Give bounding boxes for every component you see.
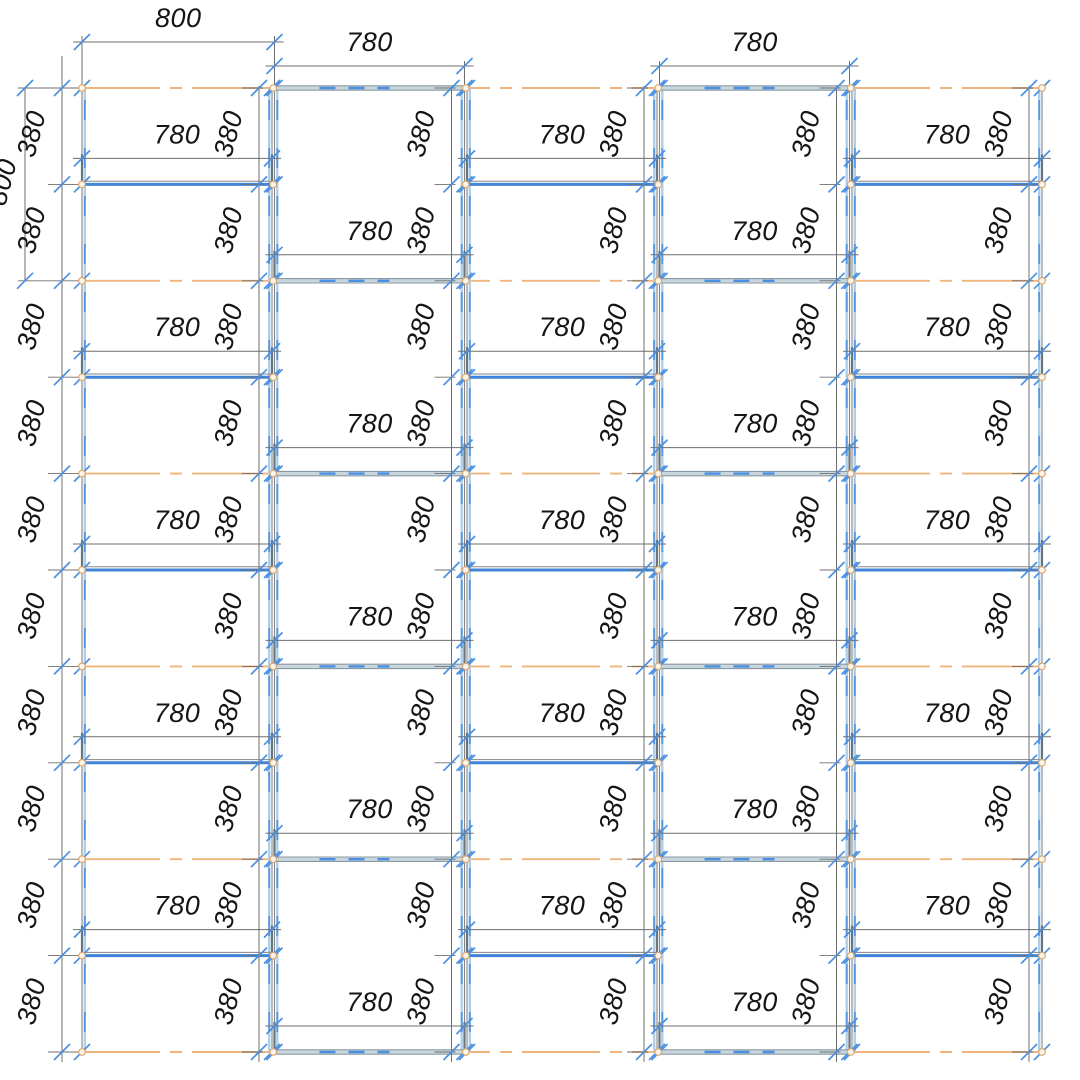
- joint-node-circle: [655, 760, 662, 767]
- dim-label-380: 380: [11, 397, 52, 450]
- joint-node-circle: [79, 85, 86, 92]
- joint-node-circle: [1039, 567, 1046, 574]
- joint-node-circle: [847, 760, 854, 767]
- dim-label-380: 380: [400, 108, 441, 161]
- joint-node-circle: [270, 470, 277, 477]
- dim-label-380: 380: [208, 204, 249, 257]
- joint-node-circle: [1039, 952, 1046, 959]
- dim-label-780: 780: [731, 987, 778, 1017]
- dim-label-380: 380: [593, 975, 634, 1028]
- joint-node-circle: [462, 470, 469, 477]
- joint-node-circle: [270, 663, 277, 670]
- dim-label-380: 380: [593, 300, 634, 353]
- dim-label-380: 380: [593, 204, 634, 257]
- dim-label-380: 380: [208, 493, 249, 546]
- joint-node-circle: [462, 856, 469, 863]
- joint-node-circle: [655, 952, 662, 959]
- joint-node-circle: [655, 663, 662, 670]
- joint-node-circle: [655, 85, 662, 92]
- dim-label-380: 380: [978, 300, 1019, 353]
- joint-node-circle: [655, 856, 662, 863]
- dim-label-380: 380: [593, 879, 634, 932]
- dim-label-380: 380: [11, 975, 52, 1028]
- joint-node-circle: [462, 1049, 469, 1056]
- joint-node-circle: [462, 85, 469, 92]
- dim-label-380: 380: [978, 590, 1019, 643]
- dim-label-380: 380: [978, 108, 1019, 161]
- panel-layout-drawing: 7807807807807808007807807807807807807807…: [0, 0, 1080, 1080]
- joint-node-circle: [462, 663, 469, 670]
- dim-label-380: 380: [400, 975, 441, 1028]
- joint-node-circle: [847, 278, 854, 285]
- joint-node-circle: [79, 663, 86, 670]
- joint-node-circle: [79, 278, 86, 285]
- dim-label-380: 380: [593, 590, 634, 643]
- dim-label-380: 380: [978, 686, 1019, 739]
- dim-label-380: 380: [593, 397, 634, 450]
- dim-label-780: 780: [539, 119, 586, 149]
- dim-label-380: 380: [400, 686, 441, 739]
- joint-node-circle: [847, 567, 854, 574]
- joint-node-circle: [270, 856, 277, 863]
- joint-node-circle: [1039, 374, 1046, 381]
- dim-label-380: 380: [785, 879, 826, 932]
- dim-label-380: 380: [11, 108, 52, 161]
- dim-label-780: 780: [346, 794, 393, 824]
- joint-node-circle: [847, 856, 854, 863]
- dim-label-top-780: 780: [731, 27, 778, 57]
- dim-label-780: 780: [924, 891, 971, 921]
- joint-node-circle: [270, 952, 277, 959]
- joint-node-circle: [462, 952, 469, 959]
- joint-node-circle: [1039, 760, 1046, 767]
- dim-label-780: 780: [154, 119, 201, 149]
- dim-label-780: 780: [539, 891, 586, 921]
- dim-label-780: 780: [539, 505, 586, 535]
- joint-node-circle: [462, 181, 469, 188]
- joint-node-circle: [847, 470, 854, 477]
- dim-label-top-780: 780: [346, 27, 393, 57]
- dim-label-380: 380: [978, 975, 1019, 1028]
- dim-label-380: 380: [593, 686, 634, 739]
- dim-label-380: 380: [11, 590, 52, 643]
- dim-label-780: 780: [731, 794, 778, 824]
- dim-label-380: 380: [400, 590, 441, 643]
- dim-label-780: 780: [154, 505, 201, 535]
- joint-node-circle: [79, 1049, 86, 1056]
- joint-node-circle: [847, 952, 854, 959]
- dim-label-780: 780: [924, 698, 971, 728]
- dim-label-380: 380: [11, 782, 52, 835]
- joint-node-circle: [655, 278, 662, 285]
- dim-label-380: 380: [11, 493, 52, 546]
- joint-node-circle: [462, 374, 469, 381]
- joint-node-circle: [79, 374, 86, 381]
- dim-label-380: 380: [400, 782, 441, 835]
- joint-node-circle: [1039, 470, 1046, 477]
- dim-label-780: 780: [346, 601, 393, 631]
- joint-node-circle: [655, 1049, 662, 1056]
- joint-node-circle: [847, 374, 854, 381]
- dim-label-380: 380: [208, 397, 249, 450]
- dim-label-780: 780: [731, 216, 778, 246]
- joint-node-circle: [270, 85, 277, 92]
- dim-label-380: 380: [11, 300, 52, 353]
- dim-label-380: 380: [400, 493, 441, 546]
- joint-node-circle: [270, 374, 277, 381]
- dim-label-380: 380: [593, 782, 634, 835]
- dim-label-780: 780: [154, 891, 201, 921]
- joint-node-circle: [847, 663, 854, 670]
- joint-node-circle: [1039, 1049, 1046, 1056]
- dim-label-780: 780: [154, 312, 201, 342]
- dim-label-780: 780: [346, 987, 393, 1017]
- joint-node-circle: [655, 374, 662, 381]
- dim-label-380: 380: [785, 204, 826, 257]
- dim-label-780: 780: [539, 698, 586, 728]
- dim-label-380: 380: [11, 879, 52, 932]
- dim-label-380: 380: [785, 397, 826, 450]
- dim-label-780: 780: [924, 312, 971, 342]
- joint-node-circle: [847, 1049, 854, 1056]
- dim-label-380: 380: [208, 590, 249, 643]
- dim-label-380: 380: [785, 975, 826, 1028]
- joint-node-circle: [462, 567, 469, 574]
- joint-node-circle: [79, 181, 86, 188]
- joint-node-circle: [462, 278, 469, 285]
- dim-label-380: 380: [208, 686, 249, 739]
- dim-label-380: 380: [785, 686, 826, 739]
- joint-node-circle: [270, 1049, 277, 1056]
- joint-node-circle: [270, 278, 277, 285]
- dim-label-380: 380: [208, 975, 249, 1028]
- joint-node-circle: [79, 567, 86, 574]
- joint-node-circle: [655, 470, 662, 477]
- joint-node-circle: [270, 760, 277, 767]
- joint-node-circle: [655, 567, 662, 574]
- joint-node-circle: [1039, 663, 1046, 670]
- joint-node-circle: [1039, 85, 1046, 92]
- dim-label-380: 380: [400, 397, 441, 450]
- joint-node-circle: [79, 952, 86, 959]
- dim-label-380: 380: [978, 397, 1019, 450]
- dim-label-380: 380: [208, 108, 249, 161]
- dim-label-780: 780: [924, 119, 971, 149]
- dim-label-780: 780: [924, 505, 971, 535]
- labels-group: 7807807807807808007807807807807807807807…: [0, 3, 1019, 1028]
- joint-node-circle: [270, 181, 277, 188]
- dim-label-380: 380: [593, 493, 634, 546]
- dim-label-380: 380: [400, 300, 441, 353]
- joint-node-circle: [847, 85, 854, 92]
- dim-label-380: 380: [208, 300, 249, 353]
- dim-label-380: 380: [978, 204, 1019, 257]
- joint-node-circle: [1039, 278, 1046, 285]
- joint-node-circle: [79, 856, 86, 863]
- dim-label-380: 380: [593, 108, 634, 161]
- dim-label-380: 380: [785, 108, 826, 161]
- dim-label-380: 380: [785, 300, 826, 353]
- cad-drawing-stage: 7807807807807808007807807807807807807807…: [0, 0, 1080, 1080]
- dim-label-780: 780: [731, 409, 778, 439]
- joint-node-circle: [1039, 181, 1046, 188]
- dim-label-380: 380: [785, 590, 826, 643]
- dim-label-780: 780: [154, 698, 201, 728]
- joint-node-circle: [462, 760, 469, 767]
- joint-node-circle: [79, 760, 86, 767]
- dim-label-380: 380: [208, 879, 249, 932]
- dim-label-top-800: 800: [155, 3, 202, 33]
- dim-label-780: 780: [731, 601, 778, 631]
- dim-label-380: 380: [978, 493, 1019, 546]
- joint-node-circle: [847, 181, 854, 188]
- dim-label-780: 780: [539, 312, 586, 342]
- dim-label-800: 800: [0, 156, 23, 209]
- dim-label-380: 380: [978, 782, 1019, 835]
- joint-node-circle: [270, 567, 277, 574]
- dim-label-380: 380: [400, 879, 441, 932]
- dim-label-380: 380: [978, 879, 1019, 932]
- dim-label-380: 380: [400, 204, 441, 257]
- dim-label-380: 380: [11, 204, 52, 257]
- dim-label-380: 380: [208, 782, 249, 835]
- dim-label-780: 780: [346, 409, 393, 439]
- joint-node-circle: [79, 470, 86, 477]
- dim-label-780: 780: [346, 216, 393, 246]
- dim-label-380: 380: [785, 493, 826, 546]
- dim-label-380: 380: [11, 686, 52, 739]
- joint-node-circle: [1039, 856, 1046, 863]
- dim-label-380: 380: [785, 782, 826, 835]
- joint-node-circle: [655, 181, 662, 188]
